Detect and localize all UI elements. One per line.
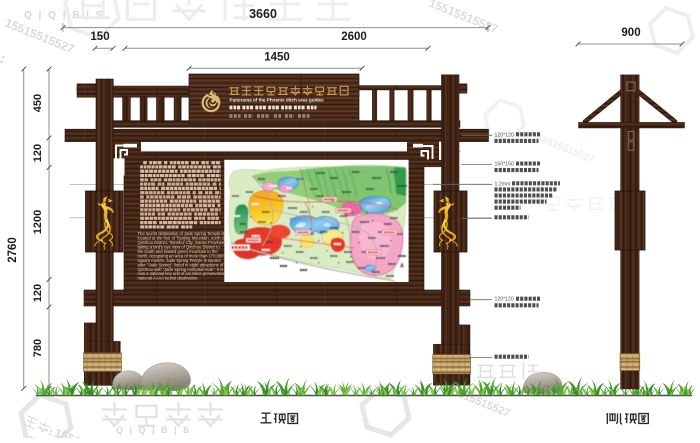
svg-text:150: 150 — [90, 31, 109, 43]
svg-text:Q | Q | B | S: Q | Q | B | S — [116, 425, 191, 435]
svg-text:120: 120 — [32, 284, 44, 302]
svg-text:150*150: 150*150 — [495, 162, 514, 168]
svg-text:1450: 1450 — [264, 52, 290, 64]
svg-text:2600: 2600 — [341, 31, 367, 43]
svg-text:900: 900 — [621, 27, 640, 39]
svg-text:1200: 1200 — [32, 210, 44, 234]
svg-text:Panorama of the Phoenix ditch: Panorama of the Phoenix ditch area guide… — [230, 97, 325, 102]
svg-text:1.2mm: 1.2mm — [495, 181, 511, 187]
svg-text:120*120: 120*120 — [495, 132, 514, 138]
svg-text:120: 120 — [32, 144, 44, 162]
svg-text:120*120: 120*120 — [495, 297, 514, 303]
svg-text:780: 780 — [32, 339, 44, 357]
svg-text:15515515527: 15515515527 — [427, 0, 501, 36]
svg-text:3660: 3660 — [249, 7, 277, 21]
svg-text:2760: 2760 — [7, 237, 19, 263]
svg-text:15515515527: 15515515527 — [3, 16, 77, 57]
svg-text:national AAAA tourist destinat: national AAAA tourist destination. — [138, 276, 199, 281]
svg-text:450: 450 — [32, 94, 44, 112]
svg-text:Q | Q | B | S: Q | Q | B | S — [24, 10, 105, 21]
svg-text:15515515527: 15515515527 — [535, 133, 596, 166]
